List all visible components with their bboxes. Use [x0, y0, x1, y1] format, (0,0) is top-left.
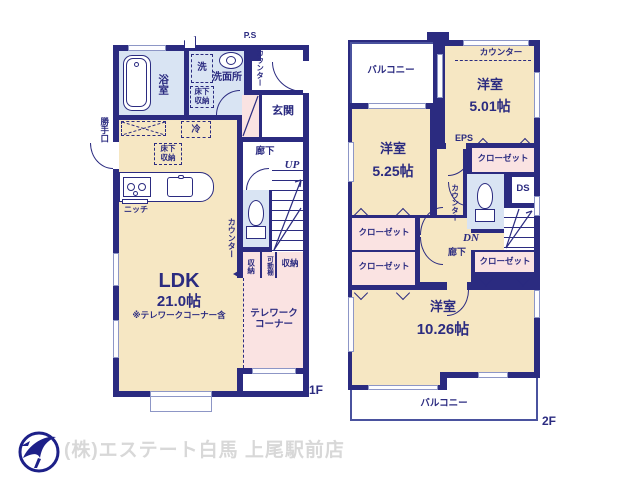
ldk-note-label: ※テレワークコーナー含 [116, 311, 242, 321]
underfloor-storage-washroom-label: 床下収納 [193, 88, 211, 105]
bathtub [123, 55, 151, 111]
bay-window [150, 397, 212, 412]
ldk-hall-dashed-line [241, 200, 242, 278]
up-label: UP [281, 159, 303, 172]
toilet2f-tank [475, 209, 495, 222]
toilet1f-tank [246, 226, 266, 239]
movable-shelf-label: 可動棚 [265, 253, 272, 278]
room-1026-door-gap [447, 282, 467, 290]
washbasin [219, 52, 243, 69]
window-525-top [368, 103, 426, 109]
dn-label: DN [459, 232, 483, 245]
porch-area [243, 374, 303, 391]
balcony-bottom-label: バルコニー [415, 399, 473, 410]
window-501-balcony [437, 54, 443, 98]
understairs-closet [242, 95, 259, 137]
window-1026-bottom-right [478, 372, 508, 378]
pantry-x-lines [122, 122, 165, 135]
closet-l1-label: クローゼット [357, 228, 411, 238]
window-bath-top [128, 45, 166, 51]
fridge-label: 冷 [181, 124, 211, 134]
room501-size-label: 5.01帖 [466, 98, 514, 114]
stairs-2f [504, 207, 534, 250]
ldk-size-label: 21.0帖 [146, 293, 212, 310]
floor2-top-jut [427, 32, 449, 42]
room525-name-label: 洋室 [372, 142, 414, 157]
closet-tr-label: クローゼット [476, 154, 530, 164]
room-525 [352, 109, 430, 215]
toilet1f-bowl [248, 200, 264, 226]
balcony-bottom-right-rail [536, 378, 538, 421]
washroom-label: 洗面所 [209, 72, 245, 84]
window-1026-bottom-left [368, 385, 438, 390]
company-name: (株)エステート白馬 上尾駅前店 [64, 440, 384, 462]
understairs-diagonal [242, 95, 259, 137]
stairs-1f-arrow [272, 170, 303, 252]
washbasin-bowl [226, 56, 236, 65]
back-door-gap [113, 142, 119, 169]
storage-a-label: 収納 [246, 255, 255, 277]
hallway2f-label: 廊下 [444, 247, 470, 257]
underfloor-storage-kitchen-label: 床下収納 [159, 145, 177, 162]
stove [123, 177, 151, 197]
toilet2f-bowl [477, 183, 493, 209]
window-525-left [348, 142, 354, 182]
window-501-top [463, 40, 529, 46]
stairs-2f-arrow [504, 207, 534, 250]
counter-wc-label: カウンター [450, 180, 459, 226]
niche-label: ニッチ [118, 205, 154, 214]
balcony-bottom-upper-patch [447, 378, 540, 390]
counter-501-label: カウンター [477, 48, 525, 58]
floor-plan-page: 冷 ニッチ 床下収納 カウンター 浴室 洗 洗面所 床下収納 P.S カウンター… [0, 0, 640, 480]
window-telework-bottom [252, 368, 296, 374]
room-1026-lower-left [352, 372, 440, 385]
bathroom-label: 浴室 [157, 66, 169, 102]
company-logo [16, 428, 62, 474]
kitchen-sink [167, 177, 193, 197]
ds-label: DS [512, 184, 534, 195]
ldk-extension-patch [237, 278, 243, 368]
stairs-1f [272, 170, 303, 252]
burner-2 [138, 183, 146, 191]
counter-501-dashline [455, 60, 531, 61]
pantry-x-box [121, 121, 166, 136]
window-ldk-left-1 [113, 253, 119, 286]
horse-logo-icon [16, 428, 62, 474]
window-1026-left [348, 297, 354, 352]
window-501-right [534, 72, 540, 118]
room525-size-label: 5.25帖 [367, 163, 419, 179]
ldk-name-label: LDK [146, 270, 212, 293]
ps-label: P.S [238, 31, 262, 41]
telework-label: テレワークコーナー [249, 309, 299, 331]
burner-3 [133, 191, 138, 196]
burner-1 [127, 183, 135, 191]
niche-shelf [122, 199, 148, 204]
balcony-top-label: バルコニー [362, 66, 420, 77]
room1026-size-label: 10.26帖 [408, 321, 478, 338]
storage-b-label: 収納 [277, 259, 303, 269]
counter-kitchen-label: カウンター [227, 210, 236, 266]
floor2-label: 2F [542, 415, 568, 429]
entry-door-gap [303, 61, 309, 93]
window-1026-right [534, 290, 540, 318]
window-right-mid [534, 196, 540, 216]
room1026-name-label: 洋室 [422, 300, 464, 315]
window-ldk-left-2 [113, 320, 119, 358]
hallway1f-label: 廊下 [251, 147, 279, 158]
eps-label: EPS [448, 133, 480, 143]
entrance-label: 玄関 [266, 105, 300, 118]
back-door-arc [90, 143, 113, 169]
bathtub-drain [134, 62, 139, 67]
closet-l2-label: クローゼット [357, 262, 411, 272]
opening-pointer [233, 270, 240, 278]
room501-name-label: 洋室 [471, 78, 509, 93]
closet-br-label: クローゼット [478, 257, 532, 267]
water-heater [184, 36, 196, 49]
counter-entry-label: カウンター [255, 45, 264, 90]
floor1-label: 1F [309, 384, 333, 398]
faucet [178, 175, 184, 179]
